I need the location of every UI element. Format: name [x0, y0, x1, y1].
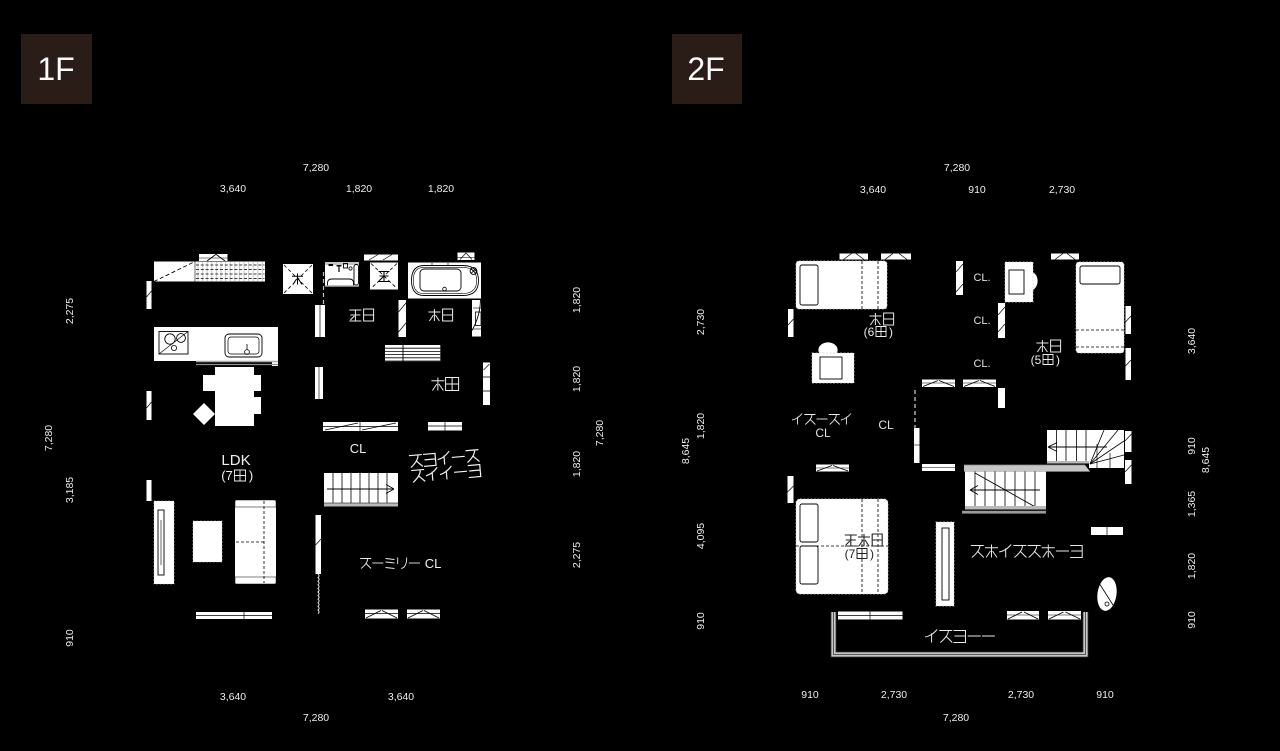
svg-text:910: 910 [1186, 437, 1198, 455]
svg-text:4,095: 4,095 [695, 523, 707, 549]
svg-text:): ) [1056, 353, 1060, 367]
svg-text:1,820: 1,820 [695, 413, 707, 439]
svg-text:2,730: 2,730 [1049, 184, 1075, 196]
svg-text:1,820: 1,820 [571, 366, 583, 392]
svg-text:1F: 1F [37, 51, 74, 87]
svg-text:1,820: 1,820 [1186, 553, 1198, 579]
svg-text:CL: CL [815, 426, 831, 440]
svg-text:1,365: 1,365 [1186, 491, 1198, 517]
svg-text:3,185: 3,185 [64, 477, 76, 503]
svg-text:): ) [889, 325, 893, 339]
svg-text:CL.: CL. [973, 358, 990, 370]
svg-text:3,640: 3,640 [220, 183, 246, 195]
svg-text:7,280: 7,280 [43, 425, 55, 451]
svg-text:1,820: 1,820 [346, 183, 372, 195]
svg-text:910: 910 [1096, 689, 1114, 701]
svg-text:(7: (7 [221, 468, 233, 483]
svg-text:2F: 2F [687, 51, 724, 87]
svg-text:2,275: 2,275 [571, 542, 583, 568]
svg-text:8,645: 8,645 [1200, 447, 1212, 473]
svg-text:(5: (5 [1031, 353, 1042, 367]
svg-text:7,280: 7,280 [944, 162, 970, 174]
svg-text:2,730: 2,730 [881, 689, 907, 701]
svg-text:CL.: CL. [973, 315, 990, 327]
svg-text:): ) [870, 547, 874, 561]
svg-text:CL.: CL. [973, 272, 990, 284]
svg-text:3,640: 3,640 [1186, 328, 1198, 354]
svg-text:2,730: 2,730 [695, 309, 707, 335]
svg-text:(6: (6 [864, 325, 875, 339]
svg-text:910: 910 [968, 184, 986, 196]
svg-text:CL: CL [878, 418, 894, 432]
svg-text:7,280: 7,280 [594, 420, 606, 446]
svg-text:1,820: 1,820 [428, 183, 454, 195]
svg-text:3,640: 3,640 [220, 691, 246, 703]
svg-text:3,640: 3,640 [860, 184, 886, 196]
svg-text:2,275: 2,275 [64, 298, 76, 324]
svg-text:(7: (7 [845, 547, 856, 561]
svg-text:8,645: 8,645 [680, 438, 692, 464]
svg-text:7,280: 7,280 [943, 712, 969, 724]
svg-text:2,730: 2,730 [1008, 689, 1034, 701]
svg-text:910: 910 [64, 629, 76, 647]
svg-text:910: 910 [801, 689, 819, 701]
svg-text:1,820: 1,820 [571, 287, 583, 313]
svg-text:910: 910 [695, 612, 707, 630]
svg-text:7,280: 7,280 [303, 712, 329, 724]
svg-text:7,280: 7,280 [303, 162, 329, 174]
svg-text:CL: CL [425, 556, 442, 571]
svg-text:3,640: 3,640 [388, 691, 414, 703]
svg-text:910: 910 [1186, 611, 1198, 629]
svg-text:LDK: LDK [221, 452, 250, 469]
svg-text:1,820: 1,820 [571, 451, 583, 477]
svg-text:): ) [249, 468, 253, 483]
svg-text:CL: CL [350, 441, 367, 456]
